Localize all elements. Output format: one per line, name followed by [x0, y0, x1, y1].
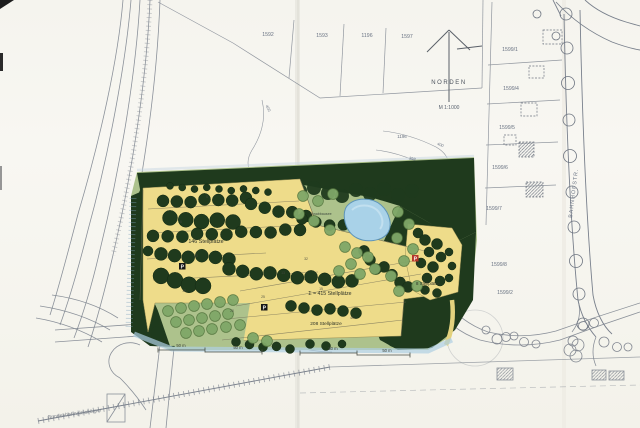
svg-text:40: 40	[350, 316, 354, 320]
svg-text:1599/1: 1599/1	[502, 47, 518, 53]
svg-text:1597: 1597	[401, 34, 413, 40]
svg-text:1592: 1592	[262, 32, 274, 38]
svg-text:13: 13	[281, 271, 285, 275]
svg-text:1599/6: 1599/6	[492, 165, 508, 171]
svg-text:1599/5: 1599/5	[499, 125, 515, 131]
svg-text:50 m: 50 m	[382, 348, 392, 353]
railway-line: Bundesbahngleiskörper	[38, 357, 640, 421]
svg-text:1593: 1593	[316, 33, 328, 39]
label-sum-stellplaetze: Σ = 415 Stellplätze	[308, 291, 351, 297]
site-area: Tonabbausee P P P 146 Stellplätze Σ = 41…	[129, 156, 477, 358]
pond-label: Tonabbausee	[310, 212, 332, 216]
svg-text:1196: 1196	[361, 33, 372, 39]
svg-text:8: 8	[180, 220, 182, 224]
label-8-stellplaetze: 8 Stellplätze	[416, 281, 440, 286]
site-plan-scan: Bundesbahngleiskörper	[0, 0, 640, 428]
svg-text:50 m: 50 m	[233, 345, 243, 350]
north-arrow: NORDEN M 1:1000	[427, 30, 482, 111]
svg-text:5: 5	[206, 195, 208, 199]
svg-text:400: 400	[265, 104, 273, 113]
svg-text:25: 25	[261, 295, 265, 299]
north-label: NORDEN	[431, 80, 467, 86]
houses	[504, 30, 562, 197]
svg-text:20: 20	[230, 309, 234, 313]
svg-text:32: 32	[304, 257, 308, 261]
label-146-stellplaetze: 146 Stellplätze	[188, 239, 223, 245]
svg-text:400: 400	[437, 141, 446, 148]
svg-text:1599/8: 1599/8	[491, 262, 507, 268]
svg-text:30: 30	[194, 254, 198, 258]
railway-label: Bundesbahngleiskörper	[47, 407, 102, 421]
contour-labels: 400 398 400	[265, 104, 446, 162]
svg-text:50 m: 50 m	[176, 343, 186, 348]
bahnhofstrasse: BAHNHOFSTR.	[533, 0, 640, 337]
svg-text:1599/4: 1599/4	[503, 86, 519, 92]
svg-text:1599/2: 1599/2	[497, 290, 513, 296]
label-208-stellplaetze: 208 Stellplätze	[310, 321, 342, 327]
site-plan-drawing: Bundesbahngleiskörper	[0, 0, 640, 428]
scale-label: M 1:1000	[439, 105, 460, 111]
svg-text:1196: 1196	[397, 134, 407, 139]
svg-text:10: 10	[182, 289, 186, 293]
pencil-trees	[482, 319, 632, 363]
svg-text:1599/7: 1599/7	[486, 206, 502, 212]
svg-text:15: 15	[319, 287, 323, 291]
svg-text:50 m: 50 m	[328, 346, 338, 351]
